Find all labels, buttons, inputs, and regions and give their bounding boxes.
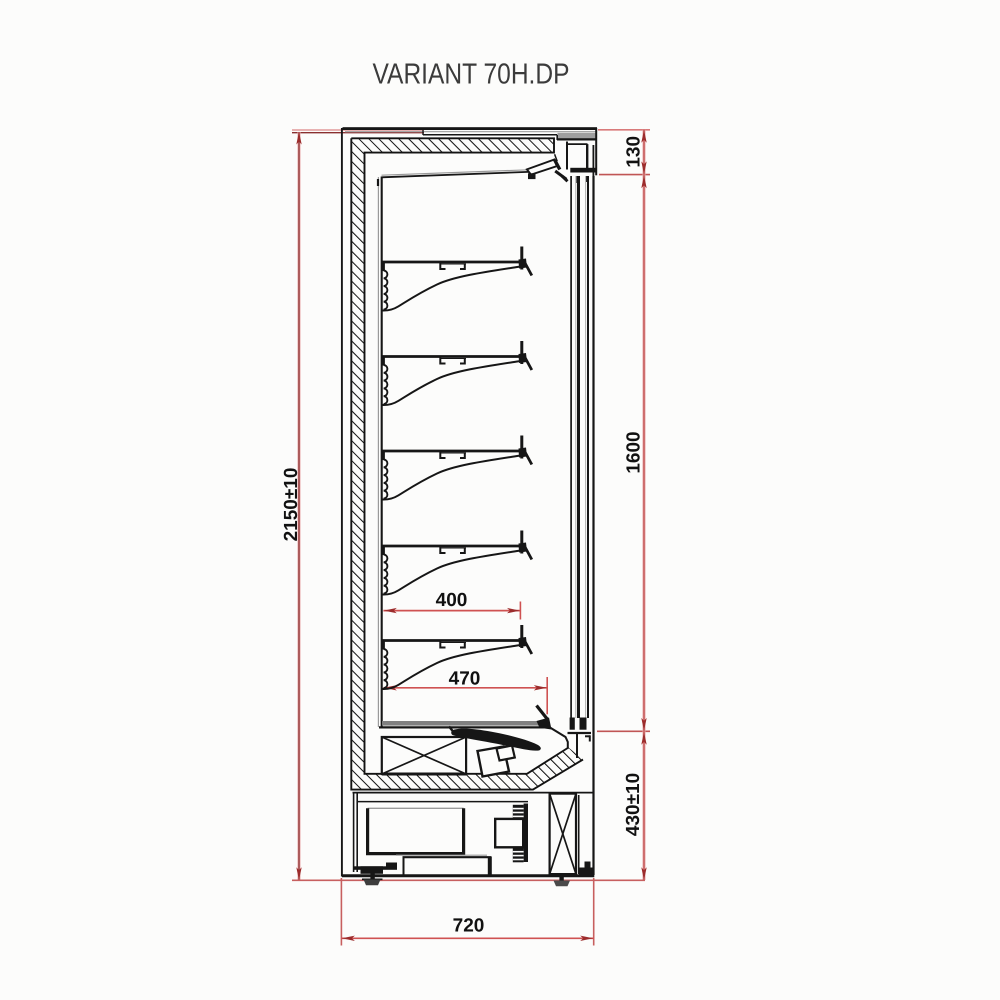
svg-text:2150±10: 2150±10 <box>281 468 302 542</box>
svg-text:VARIANT 70H.DP: VARIANT 70H.DP <box>373 59 570 91</box>
svg-text:1600: 1600 <box>623 431 644 473</box>
svg-text:720: 720 <box>453 915 485 936</box>
svg-text:400: 400 <box>436 590 468 611</box>
svg-text:430±10: 430±10 <box>623 773 644 836</box>
svg-text:130: 130 <box>624 136 645 168</box>
svg-text:470: 470 <box>449 668 481 689</box>
